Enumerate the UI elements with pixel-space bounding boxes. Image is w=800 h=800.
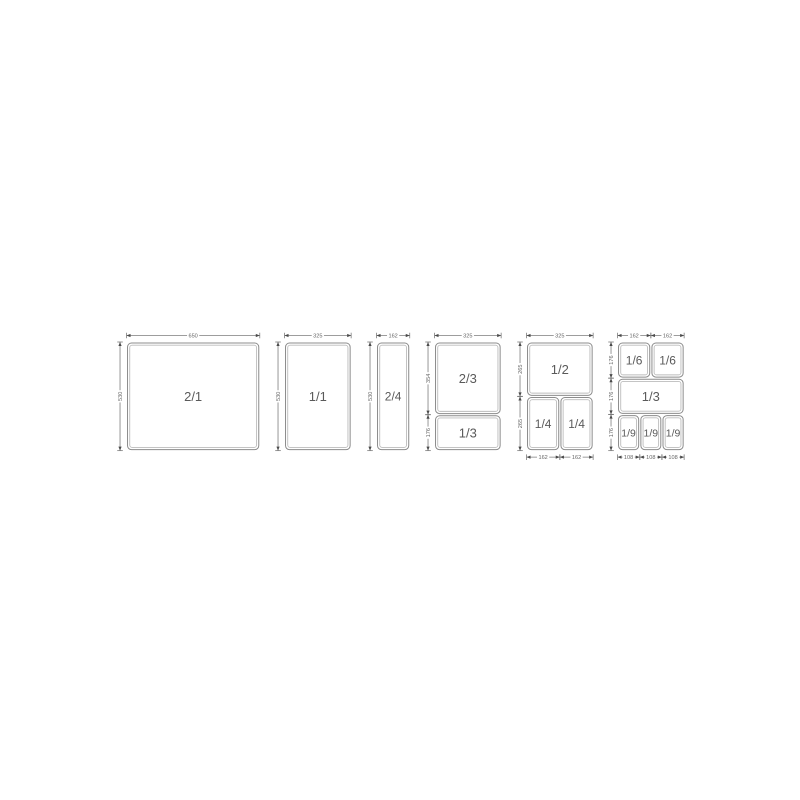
gn-group-1-1: 1/1325530 xyxy=(269,329,357,455)
gn-group-2-4: 2/4162530 xyxy=(360,329,414,455)
dimension-530: 530 xyxy=(367,342,374,451)
dim-label: 162 xyxy=(388,334,397,340)
dimension-162: 162 xyxy=(651,332,684,339)
arrowhead-icon xyxy=(285,334,289,337)
arrowhead-icon xyxy=(610,374,613,378)
pan-1-4: 1/4 xyxy=(561,398,592,450)
gn-group-1-6_1-3_1-9: 1/61/61/31/91/91/91621621761761761081081… xyxy=(602,329,690,466)
dim-label: 162 xyxy=(538,455,547,461)
dim-label: 265 xyxy=(518,419,524,428)
pan-1-3: 1/3 xyxy=(436,416,501,450)
pan-2-4: 2/4 xyxy=(377,343,408,450)
arrowhead-icon xyxy=(647,334,651,337)
pan-1-9: 1/9 xyxy=(663,416,683,450)
dim-label: 530 xyxy=(368,392,374,401)
arrowhead-icon xyxy=(518,342,521,346)
dimension-325: 325 xyxy=(285,332,352,339)
dimension-176: 176 xyxy=(425,415,432,451)
pan-1-6: 1/6 xyxy=(619,343,650,377)
pan-label: 2/1 xyxy=(184,389,202,404)
arrowhead-icon xyxy=(347,334,351,337)
gn-group-2-1: 2/1650530 xyxy=(111,329,265,455)
arrowhead-icon xyxy=(127,334,131,337)
dimension-162: 162 xyxy=(526,454,559,461)
arrowhead-icon xyxy=(610,410,613,414)
pan-label: 2/3 xyxy=(459,371,477,386)
pan-label: 1/9 xyxy=(644,428,659,439)
dim-label: 530 xyxy=(118,392,124,401)
dimension-325: 325 xyxy=(435,332,502,339)
arrowhead-icon xyxy=(526,456,530,459)
dimension-176: 176 xyxy=(608,342,615,378)
pan-label: 2/4 xyxy=(385,390,402,404)
product-diagram-page: 2/16505301/13255302/41625302/31/33253541… xyxy=(0,0,800,800)
arrowhead-icon xyxy=(118,342,121,346)
pan-1-9: 1/9 xyxy=(641,416,661,450)
dimension-176: 176 xyxy=(608,378,615,414)
gn-group-1-2_1-4: 1/21/41/4325265265162162 xyxy=(510,329,598,466)
pan-label: 1/2 xyxy=(551,362,569,377)
dimension-354: 354 xyxy=(425,342,432,415)
arrowhead-icon xyxy=(427,415,430,419)
pan-label: 1/1 xyxy=(309,389,327,404)
dim-label: 108 xyxy=(647,455,656,461)
arrowhead-icon xyxy=(427,411,430,415)
arrowhead-icon xyxy=(526,334,530,337)
dimension-108: 108 xyxy=(640,454,662,461)
pan-label: 1/6 xyxy=(660,353,677,367)
arrowhead-icon xyxy=(651,334,655,337)
dim-label: 176 xyxy=(609,355,615,364)
dimension-325: 325 xyxy=(526,332,593,339)
arrowhead-icon xyxy=(518,392,521,396)
pan-1-6: 1/6 xyxy=(652,343,683,377)
pan-1-2: 1/2 xyxy=(527,343,592,395)
dim-label: 176 xyxy=(609,392,615,401)
arrowhead-icon xyxy=(610,415,613,419)
dim-label: 176 xyxy=(609,428,615,437)
dimension-265: 265 xyxy=(516,342,523,396)
dimension-650: 650 xyxy=(127,332,260,339)
gn-group-2-3_1-3: 2/31/3325354176 xyxy=(419,329,507,455)
arrowhead-icon xyxy=(618,334,622,337)
arrowhead-icon xyxy=(560,456,564,459)
dim-label: 325 xyxy=(555,333,564,339)
dimension-108: 108 xyxy=(618,454,640,461)
arrowhead-icon xyxy=(589,456,593,459)
arrowhead-icon xyxy=(256,334,260,337)
pan-label: 1/3 xyxy=(459,425,477,440)
pan-2-1: 2/1 xyxy=(128,343,259,450)
arrowhead-icon xyxy=(435,334,439,337)
arrowhead-icon xyxy=(610,447,613,451)
arrowhead-icon xyxy=(427,342,430,346)
arrowhead-icon xyxy=(376,334,380,337)
pan-1-4: 1/4 xyxy=(527,398,558,450)
dimension-530: 530 xyxy=(117,342,124,451)
pan-label: 1/4 xyxy=(534,417,551,431)
dimension-265: 265 xyxy=(516,397,523,451)
dimension-162: 162 xyxy=(376,332,409,339)
arrowhead-icon xyxy=(636,456,640,459)
arrowhead-icon xyxy=(427,447,430,451)
arrowhead-icon xyxy=(610,342,613,346)
dim-label: 530 xyxy=(276,392,282,401)
dim-label: 354 xyxy=(426,374,432,383)
pan-1-1: 1/1 xyxy=(286,343,351,450)
pan-label: 1/4 xyxy=(568,417,585,431)
arrowhead-icon xyxy=(518,447,521,451)
gn-size-diagram: 2/16505301/13255302/41625302/31/33253541… xyxy=(111,329,690,466)
pan-label: 1/6 xyxy=(626,353,643,367)
dimension-530: 530 xyxy=(275,342,282,451)
dim-label: 162 xyxy=(630,333,639,339)
arrowhead-icon xyxy=(368,447,371,451)
arrowhead-icon xyxy=(368,342,371,346)
arrowhead-icon xyxy=(662,456,666,459)
dimension-176: 176 xyxy=(608,415,615,451)
arrowhead-icon xyxy=(618,456,622,459)
arrowhead-icon xyxy=(277,342,280,346)
dimension-162: 162 xyxy=(560,454,593,461)
dimension-162: 162 xyxy=(618,332,651,339)
arrowhead-icon xyxy=(497,334,501,337)
arrowhead-icon xyxy=(680,334,684,337)
arrowhead-icon xyxy=(658,456,662,459)
pan-label: 1/9 xyxy=(622,428,637,439)
pan-label: 1/3 xyxy=(642,389,660,404)
dim-label: 650 xyxy=(188,333,197,339)
pan-1-9: 1/9 xyxy=(619,416,639,450)
dim-label: 162 xyxy=(663,333,672,339)
arrowhead-icon xyxy=(518,397,521,401)
arrowhead-icon xyxy=(640,456,644,459)
dim-label: 325 xyxy=(463,333,472,339)
dim-label: 108 xyxy=(624,455,633,461)
pan-2-3: 2/3 xyxy=(436,343,501,414)
arrowhead-icon xyxy=(589,334,593,337)
dim-label: 162 xyxy=(572,455,581,461)
pan-1-3: 1/3 xyxy=(619,379,684,413)
dim-label: 108 xyxy=(669,455,678,461)
pan-label: 1/9 xyxy=(666,428,681,439)
dim-label: 176 xyxy=(426,428,432,437)
arrowhead-icon xyxy=(118,447,121,451)
dim-label: 265 xyxy=(518,365,524,374)
dimension-108: 108 xyxy=(662,454,684,461)
arrowhead-icon xyxy=(555,456,559,459)
arrowhead-icon xyxy=(680,456,684,459)
dim-label: 325 xyxy=(313,333,322,339)
arrowhead-icon xyxy=(610,378,613,382)
arrowhead-icon xyxy=(406,334,410,337)
arrowhead-icon xyxy=(277,447,280,451)
